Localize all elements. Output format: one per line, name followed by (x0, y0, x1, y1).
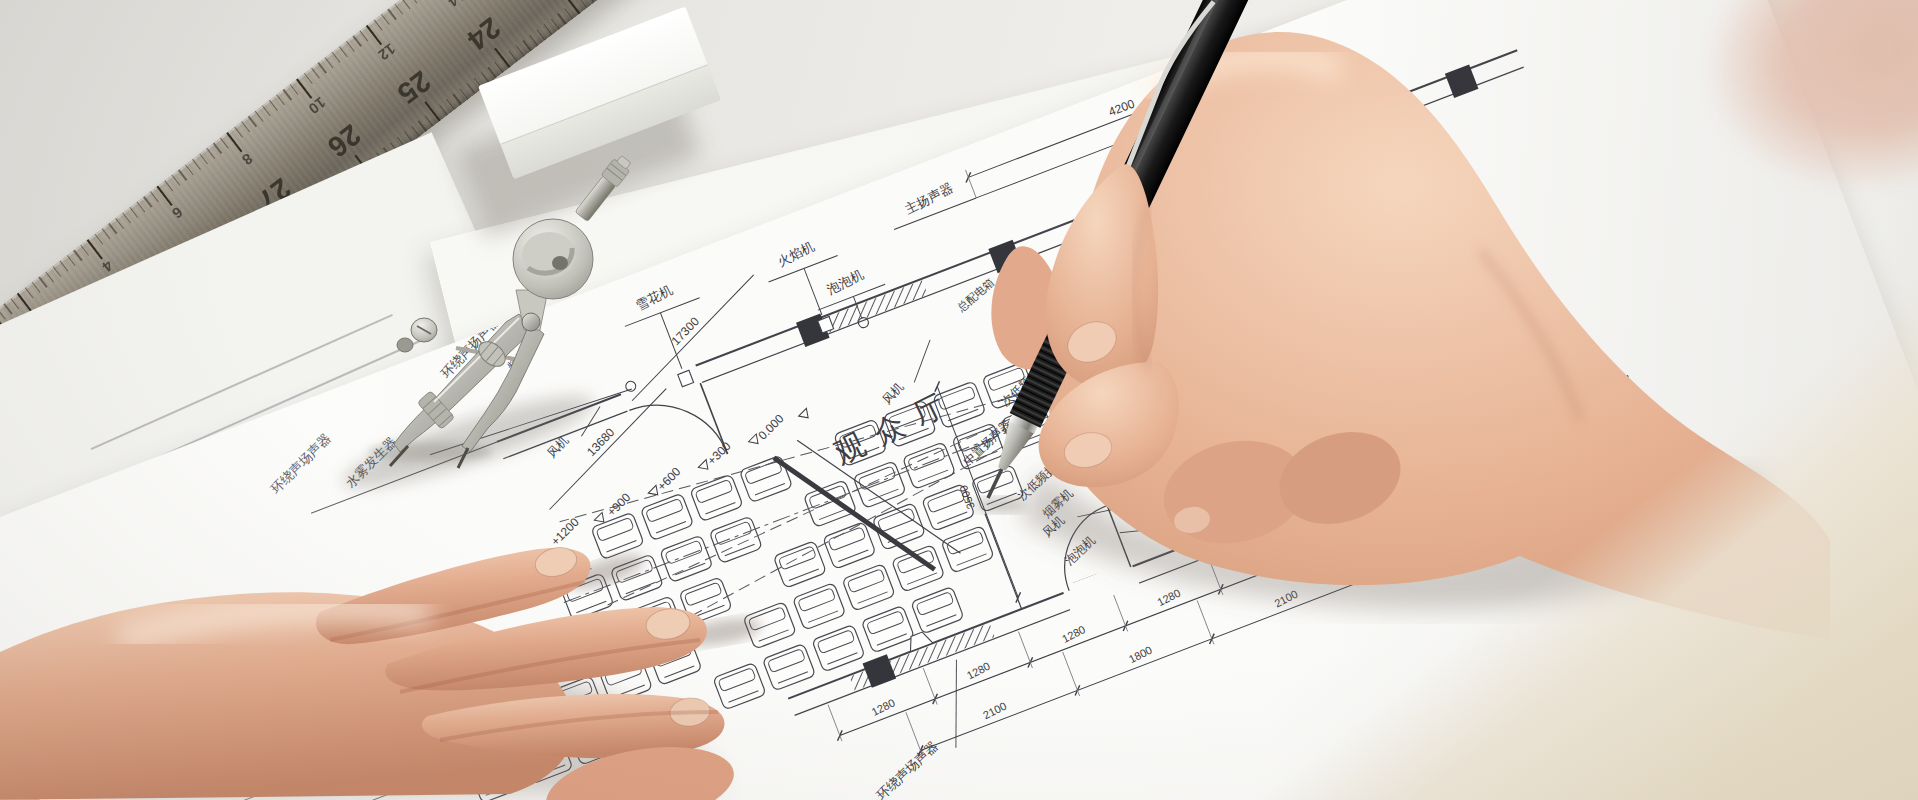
pencil-tip-shadow (974, 497, 1026, 513)
left-hand-back (0, 592, 575, 800)
left-hand (0, 543, 763, 800)
pencil-lead (986, 465, 1005, 499)
photo-scene: 302928272625242322212468101214161820 128… (0, 0, 1918, 800)
